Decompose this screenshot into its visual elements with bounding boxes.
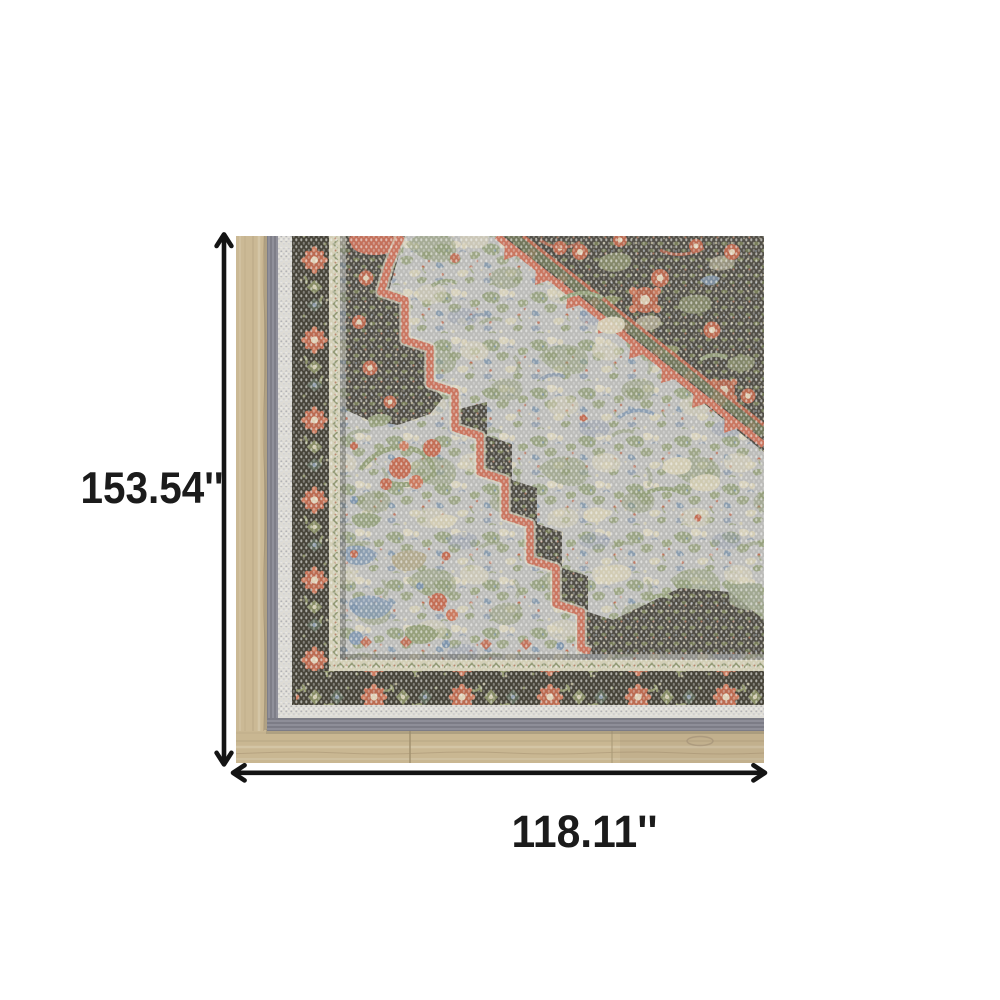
- svg-text:118.11'': 118.11'': [512, 806, 658, 857]
- svg-text:153.54'': 153.54'': [81, 464, 224, 513]
